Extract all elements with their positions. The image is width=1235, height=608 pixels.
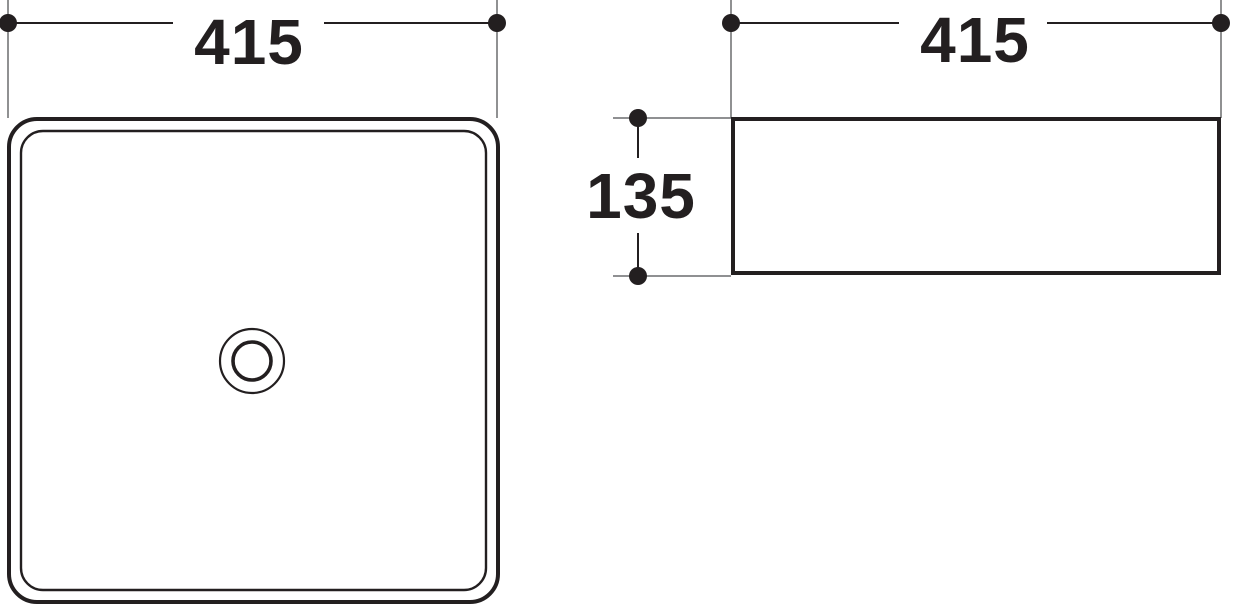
dimension-dot: [629, 267, 647, 285]
drain-outer-circle: [220, 329, 284, 393]
drain-inner-circle: [233, 342, 271, 380]
dimension-dot: [1212, 14, 1230, 32]
side-view: 415 135: [586, 0, 1230, 285]
dimension-dot: [488, 14, 506, 32]
side-view-height-dimension-label: 135: [586, 160, 696, 232]
drawing-svg: 415 415: [0, 0, 1235, 608]
side-view-width-dimension-label: 415: [920, 4, 1030, 76]
basin-inner-rim: [21, 131, 486, 590]
top-view-width-dimension-label: 415: [194, 6, 304, 78]
top-view: 415: [0, 0, 506, 602]
dimension-dot: [722, 14, 740, 32]
basin-technical-drawing: 415 415: [0, 0, 1235, 608]
dimension-dot: [629, 109, 647, 127]
basin-side-profile: [733, 119, 1219, 273]
basin-outer-rim: [9, 119, 498, 602]
dimension-dot: [0, 14, 17, 32]
